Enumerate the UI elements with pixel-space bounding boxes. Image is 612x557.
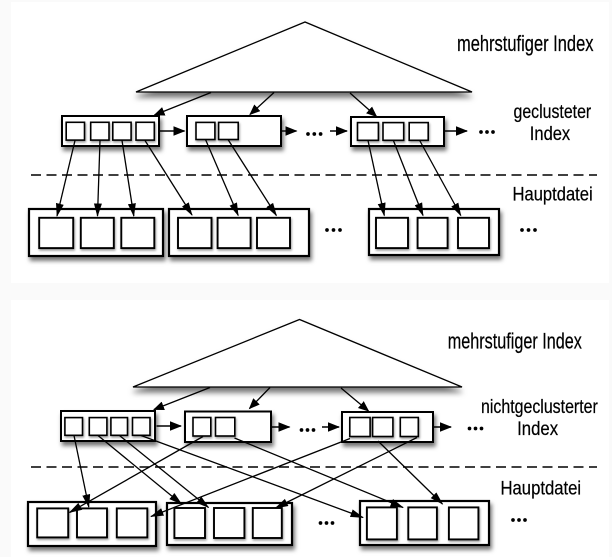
svg-text:nichtgeclusterter: nichtgeclusterter xyxy=(481,397,598,418)
svg-text:Hauptdatei: Hauptdatei xyxy=(501,479,582,500)
svg-text:Hauptdatei: Hauptdatei xyxy=(513,184,593,205)
svg-text:Index: Index xyxy=(530,124,571,145)
svg-text:geclusteter: geclusteter xyxy=(514,102,592,123)
svg-text:mehrstufiger Index: mehrstufiger Index xyxy=(448,328,582,353)
svg-text:mehrstufiger Index: mehrstufiger Index xyxy=(457,31,594,56)
svg-text:Index: Index xyxy=(517,419,558,440)
